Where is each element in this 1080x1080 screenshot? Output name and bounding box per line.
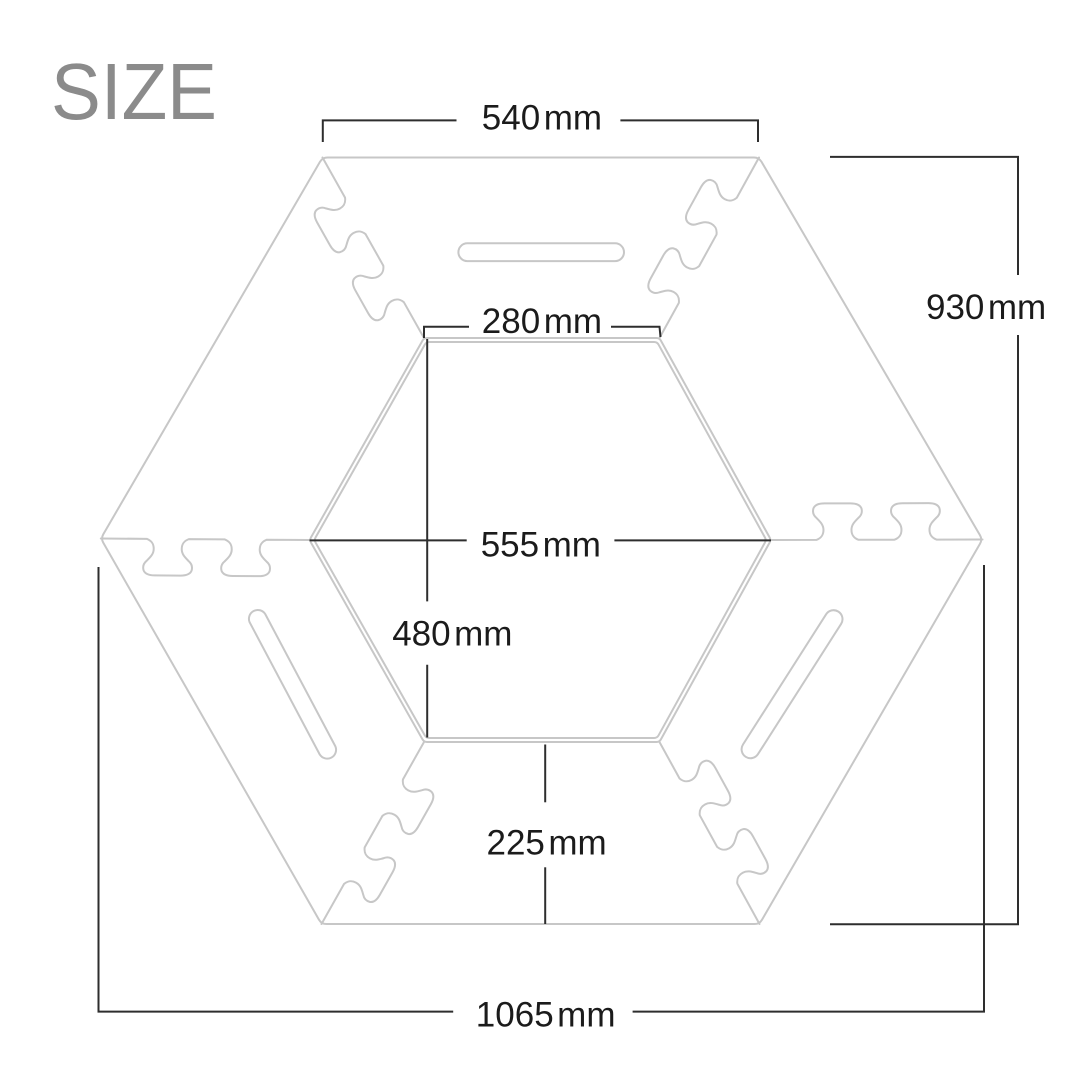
svg-text:SIZE: SIZE [51, 47, 217, 136]
svg-text:1065mm: 1065mm [476, 996, 616, 1035]
